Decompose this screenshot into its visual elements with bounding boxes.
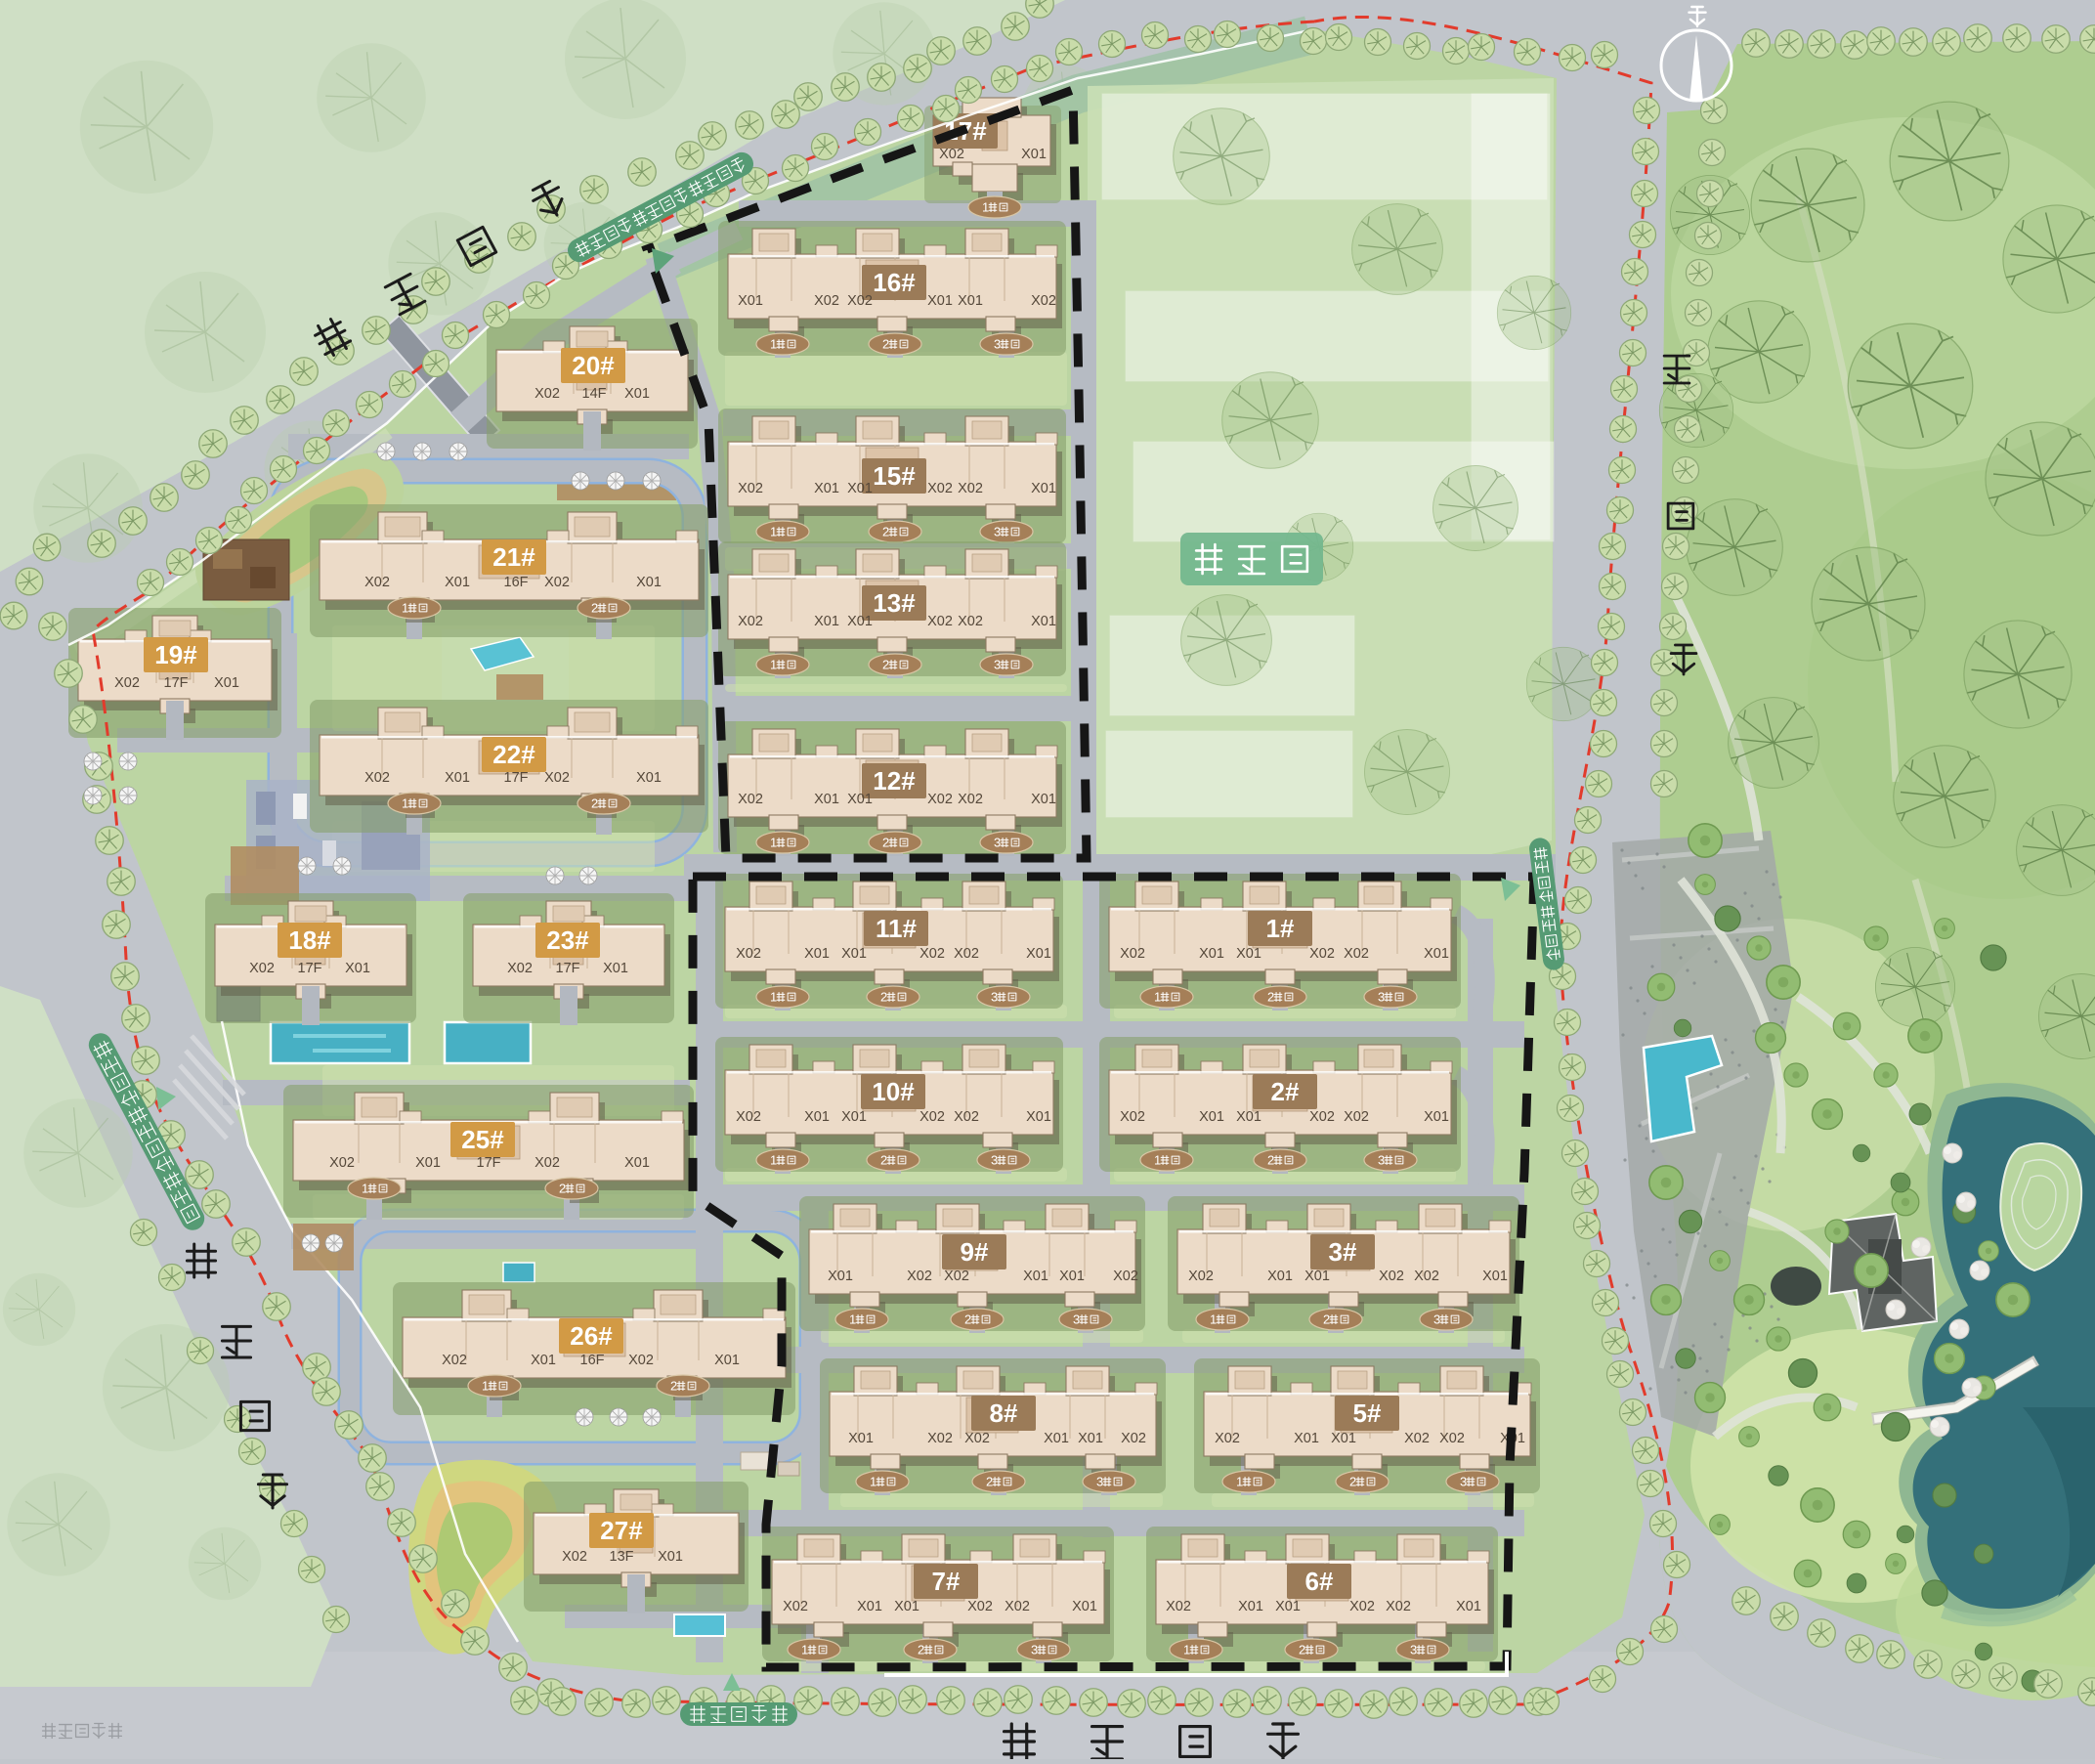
svg-text:X02: X02 xyxy=(628,1353,654,1368)
svg-text:2: 2 xyxy=(882,836,889,850)
svg-text:X02: X02 xyxy=(1309,1109,1335,1125)
svg-text:16#: 16# xyxy=(873,268,916,297)
svg-text:X02: X02 xyxy=(1414,1269,1439,1284)
svg-text:2: 2 xyxy=(986,1475,993,1489)
svg-text:X02: X02 xyxy=(958,792,983,807)
svg-text:X02: X02 xyxy=(329,1155,355,1171)
svg-text:22#: 22# xyxy=(492,740,535,769)
svg-text:X02: X02 xyxy=(364,575,390,590)
svg-text:2: 2 xyxy=(1267,990,1274,1005)
svg-text:2: 2 xyxy=(918,1643,924,1657)
svg-text:X01: X01 xyxy=(1026,1109,1051,1125)
svg-text:X02: X02 xyxy=(954,1109,979,1125)
svg-text:3: 3 xyxy=(1031,1643,1038,1657)
svg-text:X01: X01 xyxy=(804,946,830,962)
svg-text:1: 1 xyxy=(402,601,408,616)
svg-text:1: 1 xyxy=(1154,990,1161,1005)
svg-text:20#: 20# xyxy=(572,351,615,380)
svg-text:X02: X02 xyxy=(249,961,275,976)
svg-text:1: 1 xyxy=(801,1643,808,1657)
svg-text:1: 1 xyxy=(849,1312,856,1327)
svg-text:X02: X02 xyxy=(783,1599,808,1614)
svg-text:2: 2 xyxy=(964,1312,971,1327)
svg-text:X02: X02 xyxy=(1113,1269,1138,1284)
svg-text:9#: 9# xyxy=(961,1237,989,1267)
svg-text:X02: X02 xyxy=(927,792,953,807)
svg-text:X02: X02 xyxy=(927,481,953,496)
svg-text:X01: X01 xyxy=(1072,1599,1097,1614)
svg-text:3: 3 xyxy=(994,525,1001,539)
svg-text:3: 3 xyxy=(1378,1153,1385,1168)
svg-text:X01: X01 xyxy=(814,614,839,629)
svg-text:X01: X01 xyxy=(1238,1599,1263,1614)
svg-text:3: 3 xyxy=(991,1153,998,1168)
svg-text:X01: X01 xyxy=(624,1155,650,1171)
svg-text:X02: X02 xyxy=(1349,1599,1375,1614)
svg-text:21#: 21# xyxy=(492,542,535,572)
svg-text:3: 3 xyxy=(1096,1475,1103,1489)
svg-text:3: 3 xyxy=(1460,1475,1467,1489)
svg-text:X01: X01 xyxy=(1424,1109,1449,1125)
svg-text:X01: X01 xyxy=(415,1155,441,1171)
svg-text:2: 2 xyxy=(880,1153,887,1168)
svg-text:2: 2 xyxy=(882,337,889,352)
svg-text:X01: X01 xyxy=(603,961,628,976)
svg-text:X02: X02 xyxy=(927,614,953,629)
svg-text:13#: 13# xyxy=(873,588,916,618)
svg-text:17F: 17F xyxy=(477,1155,501,1171)
svg-text:X02: X02 xyxy=(1031,293,1056,309)
svg-text:X02: X02 xyxy=(927,1431,953,1446)
svg-text:X01: X01 xyxy=(1199,946,1224,962)
svg-text:X02: X02 xyxy=(507,961,533,976)
svg-text:X02: X02 xyxy=(919,1109,945,1125)
svg-text:X02: X02 xyxy=(442,1353,467,1368)
svg-text:X01: X01 xyxy=(848,1431,874,1446)
svg-text:X01: X01 xyxy=(714,1353,740,1368)
svg-text:2: 2 xyxy=(882,525,889,539)
svg-text:1: 1 xyxy=(982,200,989,215)
svg-text:X01: X01 xyxy=(1031,614,1056,629)
svg-text:2: 2 xyxy=(591,796,598,811)
svg-text:X02: X02 xyxy=(1120,1109,1145,1125)
svg-text:X01: X01 xyxy=(857,1599,882,1614)
svg-text:X01: X01 xyxy=(1275,1599,1301,1614)
svg-text:1: 1 xyxy=(770,658,777,672)
svg-text:X01: X01 xyxy=(814,481,839,496)
svg-text:X01: X01 xyxy=(1424,946,1449,962)
svg-text:X02: X02 xyxy=(534,386,560,402)
svg-text:25#: 25# xyxy=(461,1125,504,1154)
svg-text:X02: X02 xyxy=(1120,946,1145,962)
svg-text:X01: X01 xyxy=(1031,792,1056,807)
svg-text:X02: X02 xyxy=(1188,1269,1214,1284)
svg-text:X01: X01 xyxy=(1482,1269,1508,1284)
svg-text:1: 1 xyxy=(1183,1643,1190,1657)
svg-text:X02: X02 xyxy=(1404,1431,1430,1446)
svg-text:13F: 13F xyxy=(610,1549,634,1565)
svg-text:X02: X02 xyxy=(944,1269,969,1284)
svg-text:X01: X01 xyxy=(1236,946,1261,962)
svg-text:X01: X01 xyxy=(1304,1269,1330,1284)
svg-text:1: 1 xyxy=(770,1153,777,1168)
svg-text:17F: 17F xyxy=(298,961,322,976)
svg-text:X01: X01 xyxy=(345,961,370,976)
svg-text:X01: X01 xyxy=(847,481,873,496)
svg-text:2: 2 xyxy=(1349,1475,1356,1489)
svg-text:8#: 8# xyxy=(990,1398,1018,1428)
svg-text:2: 2 xyxy=(559,1182,566,1196)
svg-text:12#: 12# xyxy=(873,766,916,796)
svg-text:X01: X01 xyxy=(636,770,662,786)
svg-text:X02: X02 xyxy=(534,1155,560,1171)
svg-text:X01: X01 xyxy=(658,1549,683,1565)
svg-text:17F: 17F xyxy=(556,961,580,976)
svg-text:15#: 15# xyxy=(873,461,916,491)
svg-text:2: 2 xyxy=(880,990,887,1005)
svg-text:X02: X02 xyxy=(562,1549,587,1565)
svg-text:X01: X01 xyxy=(814,792,839,807)
svg-text:X01: X01 xyxy=(1031,481,1056,496)
svg-text:X02: X02 xyxy=(958,481,983,496)
svg-text:X02: X02 xyxy=(1439,1431,1465,1446)
svg-text:X01: X01 xyxy=(1456,1599,1481,1614)
svg-text:1: 1 xyxy=(362,1182,368,1196)
svg-text:1: 1 xyxy=(870,1475,876,1489)
svg-text:X01: X01 xyxy=(531,1353,556,1368)
svg-text:3: 3 xyxy=(1073,1312,1080,1327)
svg-text:1: 1 xyxy=(770,337,777,352)
svg-text:X01: X01 xyxy=(841,1109,867,1125)
svg-text:X01: X01 xyxy=(958,293,983,309)
svg-text:X01: X01 xyxy=(1059,1269,1085,1284)
svg-text:2#: 2# xyxy=(1271,1077,1300,1106)
svg-text:17F: 17F xyxy=(504,770,529,786)
svg-text:1: 1 xyxy=(1154,1153,1161,1168)
svg-text:X01: X01 xyxy=(1236,1109,1261,1125)
svg-text:1: 1 xyxy=(770,525,777,539)
svg-text:X02: X02 xyxy=(939,147,964,162)
svg-text:3: 3 xyxy=(994,836,1001,850)
svg-text:X02: X02 xyxy=(544,770,570,786)
svg-text:X02: X02 xyxy=(1344,1109,1369,1125)
svg-text:2: 2 xyxy=(1299,1643,1305,1657)
svg-text:3: 3 xyxy=(1378,990,1385,1005)
svg-text:X02: X02 xyxy=(738,614,763,629)
svg-text:X02: X02 xyxy=(1215,1431,1240,1446)
svg-text:X01: X01 xyxy=(624,386,650,402)
svg-text:1#: 1# xyxy=(1266,914,1295,943)
svg-text:X01: X01 xyxy=(828,1269,853,1284)
svg-text:X02: X02 xyxy=(907,1269,932,1284)
svg-text:X02: X02 xyxy=(847,293,873,309)
svg-text:X02: X02 xyxy=(1121,1431,1146,1446)
svg-text:3#: 3# xyxy=(1329,1237,1357,1267)
svg-text:X01: X01 xyxy=(841,946,867,962)
svg-text:X02: X02 xyxy=(544,575,570,590)
svg-text:27#: 27# xyxy=(600,1516,643,1545)
svg-text:X02: X02 xyxy=(814,293,839,309)
svg-text:X01: X01 xyxy=(1026,946,1051,962)
svg-text:X01: X01 xyxy=(1199,1109,1224,1125)
svg-text:X01: X01 xyxy=(847,792,873,807)
svg-text:X02: X02 xyxy=(114,675,140,691)
svg-text:3: 3 xyxy=(991,990,998,1005)
svg-text:X01: X01 xyxy=(1267,1269,1293,1284)
svg-text:16F: 16F xyxy=(504,575,529,590)
svg-text:X02: X02 xyxy=(1344,946,1369,962)
svg-text:10#: 10# xyxy=(872,1077,915,1106)
svg-text:6#: 6# xyxy=(1305,1567,1334,1596)
svg-text:7#: 7# xyxy=(932,1567,961,1596)
svg-text:X01: X01 xyxy=(804,1109,830,1125)
svg-text:X01: X01 xyxy=(636,575,662,590)
svg-text:1: 1 xyxy=(770,990,777,1005)
svg-text:3: 3 xyxy=(1433,1312,1440,1327)
svg-text:X01: X01 xyxy=(1078,1431,1103,1446)
svg-text:X02: X02 xyxy=(738,792,763,807)
svg-text:X01: X01 xyxy=(1331,1431,1356,1446)
svg-text:X01: X01 xyxy=(894,1599,919,1614)
svg-text:1: 1 xyxy=(1236,1475,1243,1489)
svg-text:19#: 19# xyxy=(154,640,197,669)
svg-text:2: 2 xyxy=(1267,1153,1274,1168)
svg-text:1: 1 xyxy=(770,836,777,850)
svg-text:X01: X01 xyxy=(1294,1431,1319,1446)
svg-text:X01: X01 xyxy=(214,675,239,691)
svg-text:X02: X02 xyxy=(736,1109,761,1125)
svg-text:3: 3 xyxy=(994,658,1001,672)
svg-text:X02: X02 xyxy=(1166,1599,1191,1614)
svg-text:3: 3 xyxy=(1410,1643,1417,1657)
svg-text:1: 1 xyxy=(402,796,408,811)
svg-text:X02: X02 xyxy=(736,946,761,962)
svg-text:X02: X02 xyxy=(954,946,979,962)
svg-text:X02: X02 xyxy=(364,770,390,786)
svg-text:X01: X01 xyxy=(1023,1269,1048,1284)
svg-text:14F: 14F xyxy=(582,386,607,402)
svg-text:X02: X02 xyxy=(967,1599,993,1614)
svg-text:1: 1 xyxy=(482,1379,489,1394)
svg-text:X02: X02 xyxy=(1309,946,1335,962)
svg-text:X02: X02 xyxy=(1005,1599,1030,1614)
svg-text:3: 3 xyxy=(994,337,1001,352)
svg-text:5#: 5# xyxy=(1353,1398,1382,1428)
svg-text:X01: X01 xyxy=(927,293,953,309)
svg-text:23#: 23# xyxy=(546,925,589,955)
svg-text:11#: 11# xyxy=(876,914,917,943)
svg-text:X02: X02 xyxy=(1386,1599,1411,1614)
svg-text:X01: X01 xyxy=(738,293,763,309)
svg-text:2: 2 xyxy=(1323,1312,1330,1327)
svg-text:X02: X02 xyxy=(958,614,983,629)
svg-text:X01: X01 xyxy=(1044,1431,1069,1446)
svg-text:X02: X02 xyxy=(1379,1269,1404,1284)
svg-text:17F: 17F xyxy=(164,675,189,691)
svg-text:X02: X02 xyxy=(919,946,945,962)
svg-text:X01: X01 xyxy=(1021,147,1047,162)
svg-text:X01: X01 xyxy=(847,614,873,629)
svg-text:X01: X01 xyxy=(445,575,470,590)
svg-text:1: 1 xyxy=(1210,1312,1217,1327)
svg-text:2: 2 xyxy=(670,1379,677,1394)
svg-text:16F: 16F xyxy=(580,1353,605,1368)
svg-text:18#: 18# xyxy=(288,925,331,955)
svg-text:26#: 26# xyxy=(570,1321,613,1351)
svg-text:X02: X02 xyxy=(738,481,763,496)
svg-text:X02: X02 xyxy=(964,1431,990,1446)
svg-text:X01: X01 xyxy=(445,770,470,786)
svg-text:2: 2 xyxy=(882,658,889,672)
svg-text:2: 2 xyxy=(591,601,598,616)
